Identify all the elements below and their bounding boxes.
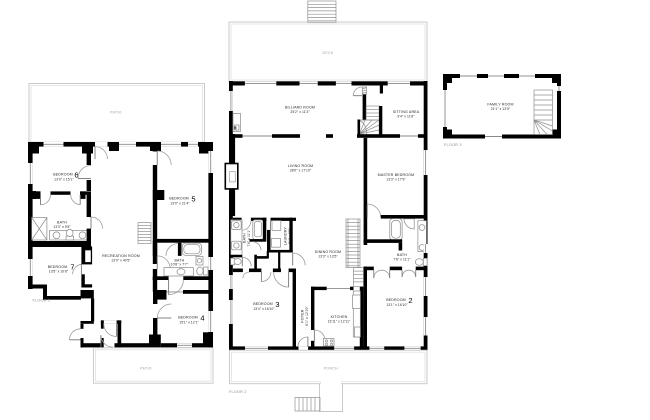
svg-text:13'0" x 40'5": 13'0" x 40'5" [111, 259, 131, 263]
svg-text:FOYER: FOYER [301, 309, 305, 322]
svg-text:BEDROOM: BEDROOM [169, 197, 189, 201]
svg-text:13'0" x 21'4": 13'0" x 21'4" [170, 202, 190, 206]
svg-text:BILLIARD ROOM: BILLIARD ROOM [285, 106, 315, 110]
svg-text:PORCH: PORCH [324, 367, 338, 371]
svg-text:BATH: BATH [397, 253, 407, 257]
svg-text:KITCHEN: KITCHEN [331, 315, 348, 319]
svg-text:FLOOR 3: FLOOR 3 [444, 143, 462, 147]
svg-text:BEDROOM: BEDROOM [48, 265, 68, 269]
svg-text:DECK: DECK [322, 51, 333, 55]
svg-text:FAMILY ROOM: FAMILY ROOM [487, 103, 513, 107]
svg-text:BEDROOM: BEDROOM [386, 298, 406, 302]
svg-text:13'11" x 12'11": 13'11" x 12'11" [328, 320, 351, 324]
svg-text:FLOOR 2: FLOOR 2 [229, 390, 247, 394]
svg-text:BATH: BATH [57, 221, 67, 225]
svg-text:5: 5 [191, 195, 195, 204]
svg-text:7: 7 [70, 263, 74, 272]
svg-text:13'1" x 16'10": 13'1" x 16'10" [386, 303, 408, 307]
svg-text:10'8" x 7'7": 10'8" x 7'7" [171, 263, 189, 267]
svg-text:BATH: BATH [243, 233, 247, 243]
svg-text:13'5" x 10'8": 13'5" x 10'8" [49, 270, 69, 274]
svg-text:PATIO: PATIO [110, 111, 122, 115]
svg-text:DINING ROOM: DINING ROOM [315, 250, 341, 254]
svg-text:6'1" x 12'10": 6'1" x 12'10" [305, 306, 309, 326]
svg-text:LIVING ROOM: LIVING ROOM [288, 164, 314, 168]
svg-text:SITTING AREA: SITTING AREA [393, 110, 420, 114]
svg-text:13'3" x 13'5": 13'3" x 13'5" [318, 255, 338, 259]
svg-text:28'0" x 17'10": 28'0" x 17'10" [290, 169, 312, 173]
svg-text:RECREATION ROOM: RECREATION ROOM [102, 254, 140, 258]
svg-text:MASTER BEDROOM: MASTER BEDROOM [378, 173, 415, 177]
svg-text:13'4" x 16'10": 13'4" x 16'10" [253, 307, 275, 311]
svg-text:13'3" x 17'9": 13'3" x 17'9" [386, 178, 406, 182]
svg-text:21'1" x 13'9": 21'1" x 13'9" [491, 107, 511, 111]
svg-text:BEDROOM: BEDROOM [253, 302, 273, 306]
svg-text:2: 2 [408, 296, 412, 305]
svg-text:BEDROOM: BEDROOM [53, 173, 73, 177]
svg-text:4: 4 [200, 314, 204, 323]
svg-text:PATIO: PATIO [140, 367, 152, 371]
svg-text:BEDROOM: BEDROOM [178, 316, 198, 320]
svg-text:13'3" x 5'5": 13'3" x 5'5" [53, 225, 71, 229]
svg-text:7'6" x 11'1": 7'6" x 11'1" [393, 258, 411, 262]
svg-text:9'4" x 11'8": 9'4" x 11'8" [397, 115, 415, 119]
svg-text:7'6" x 11'1": 7'6" x 11'1" [247, 229, 251, 247]
svg-text:15'1" x 12'1": 15'1" x 12'1" [179, 321, 199, 325]
svg-text:25'2" x 11'3": 25'2" x 11'3" [290, 110, 310, 114]
svg-text:13'0" x 15'1": 13'0" x 15'1" [54, 178, 74, 182]
svg-text:3: 3 [275, 300, 279, 309]
svg-text:FLOOR 1: FLOOR 1 [33, 299, 51, 303]
